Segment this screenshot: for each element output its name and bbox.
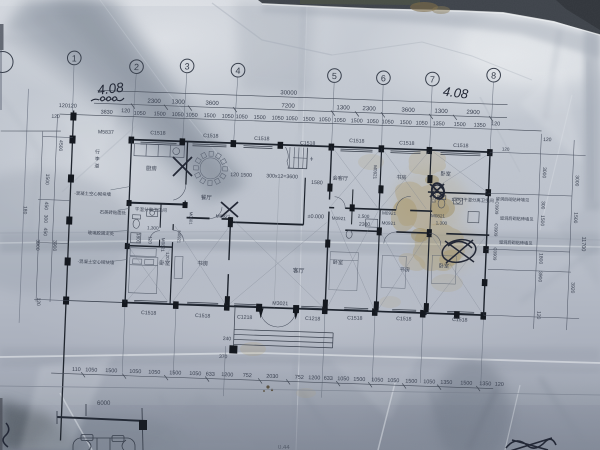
svg-text:1050: 1050 xyxy=(337,376,349,382)
svg-text:120: 120 xyxy=(165,252,170,260)
svg-text:120: 120 xyxy=(51,114,60,120)
svg-text:1050: 1050 xyxy=(423,379,435,385)
svg-text:1050: 1050 xyxy=(172,112,184,118)
svg-text:30000: 30000 xyxy=(280,90,298,97)
svg-text:2,500: 2,500 xyxy=(358,214,370,219)
svg-text:3900: 3900 xyxy=(51,240,57,252)
svg-text:6: 6 xyxy=(381,73,386,83)
svg-text:C1518: C1518 xyxy=(195,313,211,320)
svg-text:1200: 1200 xyxy=(308,375,320,381)
svg-text:4.08: 4.08 xyxy=(442,84,470,102)
svg-text:1050: 1050 xyxy=(387,378,399,384)
svg-text:C1218: C1218 xyxy=(305,316,321,323)
svg-text:370: 370 xyxy=(219,354,228,360)
svg-text:5: 5 xyxy=(332,71,337,81)
svg-text:1300: 1300 xyxy=(434,109,448,115)
svg-text:C1518: C1518 xyxy=(347,315,363,322)
svg-text:M0921: M0921 xyxy=(382,220,397,226)
svg-text:3600: 3600 xyxy=(205,101,219,107)
svg-text:3600: 3600 xyxy=(401,107,415,113)
svg-text:C1518: C1518 xyxy=(141,310,157,317)
svg-text:633: 633 xyxy=(324,376,333,382)
svg-text:C1518: C1518 xyxy=(254,136,270,143)
svg-text:1500: 1500 xyxy=(303,117,315,123)
svg-text:M0601: M0601 xyxy=(188,212,194,226)
svg-text:1,300: 1,300 xyxy=(436,220,448,225)
svg-text:752: 752 xyxy=(243,373,252,379)
svg-text:1350: 1350 xyxy=(440,380,452,386)
svg-text:1500: 1500 xyxy=(405,378,417,384)
svg-text:M0921: M0921 xyxy=(382,210,397,216)
svg-text:11700: 11700 xyxy=(580,236,587,251)
svg-text:4500: 4500 xyxy=(57,140,63,152)
svg-text:1050: 1050 xyxy=(222,114,234,120)
svg-text:1500: 1500 xyxy=(169,370,181,376)
svg-text:300: 300 xyxy=(42,215,48,224)
svg-text:1050: 1050 xyxy=(334,118,346,124)
svg-text:180: 180 xyxy=(21,206,27,215)
svg-text:C0909: C0909 xyxy=(494,201,500,215)
svg-text:1050: 1050 xyxy=(186,112,198,118)
svg-text:C1218: C1218 xyxy=(237,315,253,322)
svg-text:1500: 1500 xyxy=(460,380,472,386)
svg-text:3830: 3830 xyxy=(101,109,113,115)
svg-text:3900: 3900 xyxy=(536,271,542,283)
svg-text:240: 240 xyxy=(223,336,232,342)
svg-text:C1518: C1518 xyxy=(452,317,468,324)
svg-text:1050: 1050 xyxy=(236,114,248,120)
svg-text:1050: 1050 xyxy=(371,377,383,383)
svg-text:120: 120 xyxy=(535,311,541,320)
svg-text:8: 8 xyxy=(491,71,496,81)
svg-text:1: 1 xyxy=(72,53,77,63)
svg-text:M0821: M0821 xyxy=(431,213,446,219)
svg-text:3: 3 xyxy=(184,61,189,71)
svg-text:C1518: C1518 xyxy=(349,138,365,145)
svg-text:M0821: M0821 xyxy=(160,238,166,253)
svg-text:C1518: C1518 xyxy=(396,316,412,323)
svg-text:1050: 1050 xyxy=(319,117,331,123)
svg-text:1050: 1050 xyxy=(272,115,284,121)
svg-text:1050: 1050 xyxy=(382,119,394,125)
svg-text:1500: 1500 xyxy=(105,368,117,374)
svg-text:C0909: C0909 xyxy=(493,223,499,237)
svg-text:1300: 1300 xyxy=(336,105,350,111)
svg-text:3900: 3900 xyxy=(34,239,40,251)
svg-text:1050: 1050 xyxy=(85,367,97,373)
svg-text:1500: 1500 xyxy=(154,111,166,117)
svg-text:M0921: M0921 xyxy=(372,165,378,180)
svg-text:120: 120 xyxy=(495,382,504,388)
svg-text:0.44: 0.44 xyxy=(278,445,290,450)
svg-text:2: 2 xyxy=(134,62,139,72)
svg-text:7: 7 xyxy=(430,74,435,84)
svg-text:C1518: C1518 xyxy=(453,143,469,150)
svg-text:633: 633 xyxy=(206,372,215,378)
svg-text:1200: 1200 xyxy=(221,372,233,378)
svg-text:1500: 1500 xyxy=(539,215,545,227)
svg-text:1050: 1050 xyxy=(367,119,379,125)
svg-text:7200: 7200 xyxy=(281,103,295,109)
svg-text:450: 450 xyxy=(43,202,49,211)
svg-text:1500: 1500 xyxy=(204,113,216,119)
svg-text:2300: 2300 xyxy=(362,106,376,112)
svg-text:300x12=3600: 300x12=3600 xyxy=(266,173,298,180)
svg-text:1050: 1050 xyxy=(189,371,201,377)
svg-text:M5837: M5837 xyxy=(98,129,114,136)
svg-text:1350: 1350 xyxy=(433,121,445,127)
svg-text:1500: 1500 xyxy=(44,174,50,186)
svg-text:1800: 1800 xyxy=(537,253,543,265)
svg-text:6000: 6000 xyxy=(97,401,111,407)
svg-text:C1518: C1518 xyxy=(203,133,219,140)
svg-text:450: 450 xyxy=(42,228,48,237)
svg-text:1500: 1500 xyxy=(454,122,466,128)
svg-text:1050: 1050 xyxy=(134,111,146,117)
svg-text:4: 4 xyxy=(235,66,240,76)
svg-text:C1518: C1518 xyxy=(399,140,415,147)
svg-text:120: 120 xyxy=(543,137,552,143)
svg-text:3920: 3920 xyxy=(569,282,575,294)
svg-text:1350: 1350 xyxy=(474,123,486,129)
svg-text:2300: 2300 xyxy=(147,99,161,105)
svg-text:1500: 1500 xyxy=(353,377,365,383)
svg-text:M3021: M3021 xyxy=(272,301,288,308)
svg-text:1500: 1500 xyxy=(351,118,363,124)
svg-text:1300: 1300 xyxy=(171,99,185,105)
svg-text:1800: 1800 xyxy=(135,233,140,244)
svg-text:120120: 120120 xyxy=(59,103,77,110)
svg-text:1500: 1500 xyxy=(400,120,412,126)
svg-text:120: 120 xyxy=(121,108,130,114)
svg-text:±0.000: ±0.000 xyxy=(307,214,324,221)
svg-text:1050: 1050 xyxy=(416,120,428,126)
svg-text:3000: 3000 xyxy=(541,167,547,179)
svg-text:120 1500: 120 1500 xyxy=(230,172,252,179)
svg-text:C0909: C0909 xyxy=(492,247,498,261)
svg-text:1500: 1500 xyxy=(254,115,266,121)
svg-text:3000: 3000 xyxy=(573,175,579,187)
svg-text:110: 110 xyxy=(72,367,81,373)
svg-text:1500: 1500 xyxy=(572,212,578,224)
svg-text:1580: 1580 xyxy=(311,180,323,186)
svg-text:1050: 1050 xyxy=(286,116,298,122)
svg-text:2900: 2900 xyxy=(466,110,480,116)
svg-text:1350: 1350 xyxy=(479,381,491,387)
svg-text:752: 752 xyxy=(295,375,304,381)
svg-text:C1518: C1518 xyxy=(150,130,166,137)
svg-text:300: 300 xyxy=(539,201,545,210)
svg-text:120: 120 xyxy=(35,297,41,306)
svg-text:1,300: 1,300 xyxy=(147,225,159,230)
svg-text:1050: 1050 xyxy=(148,369,160,375)
svg-text:1050: 1050 xyxy=(129,369,141,375)
svg-text:120: 120 xyxy=(502,147,510,152)
svg-text:2030: 2030 xyxy=(266,374,278,380)
svg-text:120: 120 xyxy=(491,121,500,127)
